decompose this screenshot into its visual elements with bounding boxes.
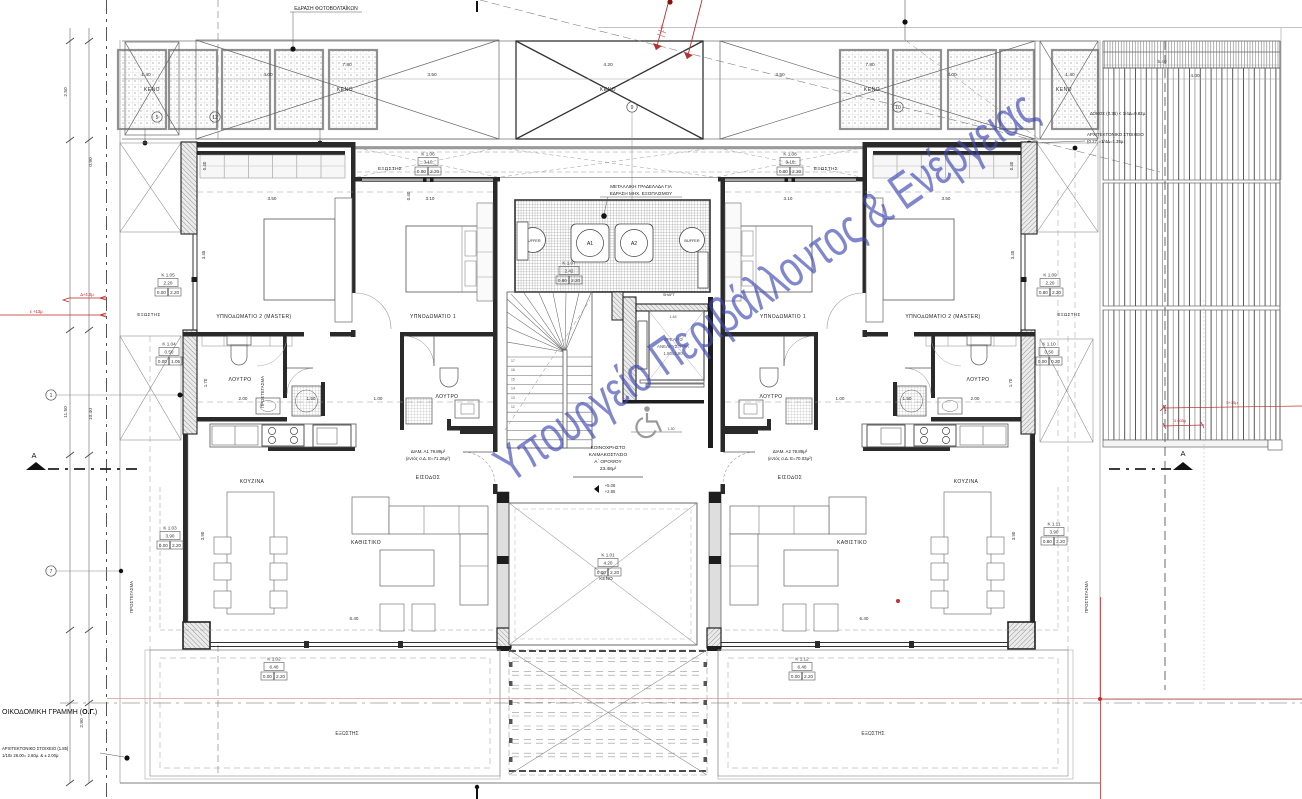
svg-text:0.00: 0.00 [159, 543, 168, 548]
svg-text:A: A [1180, 449, 1185, 458]
svg-text:KENO: KENO [864, 87, 880, 93]
svg-text:Κ 1.08: Κ 1.08 [783, 152, 797, 157]
svg-text:2.20: 2.20 [571, 278, 580, 283]
svg-text:Κ 1.11: Κ 1.11 [1048, 522, 1061, 527]
svg-text:4.00: 4.00 [947, 72, 957, 78]
svg-text:0.00: 0.00 [158, 359, 167, 364]
svg-text:1.70: 1.70 [1008, 378, 1013, 387]
svg-text:ΚΟΥΖΙΝΑ: ΚΟΥΖΙΝΑ [954, 479, 979, 485]
svg-text:ΕΙΣΟ∆ΟΣ: ΕΙΣΟ∆ΟΣ [778, 475, 803, 481]
svg-text:0.00: 0.00 [263, 674, 272, 679]
svg-text:0.00: 0.00 [791, 674, 800, 679]
svg-text:SHAFT: SHAFT [663, 293, 676, 297]
svg-text:3.10: 3.10 [426, 196, 435, 201]
svg-text:1.40: 1.40 [1065, 72, 1075, 78]
svg-text:Κ 1.05: Κ 1.05 [161, 273, 175, 278]
svg-text:3.90: 3.90 [1011, 531, 1016, 540]
svg-text:ΕΙΣΟ∆ΟΣ: ΕΙΣΟ∆ΟΣ [416, 475, 441, 481]
svg-text:KENO: KENO [600, 87, 616, 93]
svg-text:(εντός σ.∆. Ε=71.26μ²): (εντός σ.∆. Ε=71.26μ²) [406, 456, 451, 461]
svg-text:3.50: 3.50 [268, 196, 277, 201]
svg-text:23.48μ²: 23.48μ² [600, 466, 617, 472]
svg-text:0.00: 0.00 [779, 169, 788, 174]
svg-text:9: 9 [631, 105, 634, 111]
svg-text:6.40: 6.40 [860, 616, 869, 621]
svg-text:+5.08: +5.08 [605, 483, 616, 488]
svg-text:12: 12 [511, 405, 515, 409]
svg-text:ΑΡΧΙΤΕΚΤΟΝΙΚΟ ΣΤΟΙΧΕΙΟ (1.85): ΑΡΧΙΤΕΚΤΟΝΙΚΟ ΣΤΟΙΧΕΙΟ (1.85) [2, 746, 69, 751]
svg-text:3.10: 3.10 [424, 160, 433, 165]
svg-text:ΚΛΙΜΑΚΟΣΤΑΣΙΟ: ΚΛΙΜΑΚΟΣΤΑΣΙΟ [589, 452, 628, 458]
svg-text:2.20: 2.20 [430, 169, 439, 174]
svg-text:Κ 1.03: Κ 1.03 [163, 526, 177, 531]
svg-text:2.42: 2.42 [565, 269, 574, 274]
svg-text:ΕΞΩΣΤΗΣ: ΕΞΩΣΤΗΣ [1057, 312, 1080, 317]
svg-text:ε +13μ: ε +13μ [30, 309, 43, 314]
svg-text:1/10x 26.00= 2.60μ. & ± 2.00μ: 1/10x 26.00= 2.60μ. & ± 2.00μ [2, 753, 59, 758]
svg-text:Κ 1.09: Κ 1.09 [1043, 273, 1057, 278]
svg-text:Ε∆ΡΑΣΗ ΦΩΤΟΒΟΛΤΑΪΚΩΝ: Ε∆ΡΑΣΗ ΦΩΤΟΒΟΛΤΑΪΚΩΝ [294, 5, 358, 12]
svg-text:ΚΑΘΙΣΤΙΚΟ: ΚΑΘΙΣΤΙΚΟ [351, 540, 381, 546]
svg-text:10.40: 10.40 [88, 408, 94, 420]
svg-text:1.30: 1.30 [668, 427, 675, 431]
svg-text:0.80: 0.80 [558, 278, 567, 283]
svg-text:5: 5 [156, 115, 159, 121]
svg-text:6.40: 6.40 [350, 616, 359, 621]
svg-text:14: 14 [511, 387, 515, 391]
svg-text:2.20: 2.20 [276, 674, 285, 679]
svg-text:ΛΟΥΤΡΟ: ΛΟΥΤΡΟ [967, 377, 990, 383]
svg-text:(εντός σ.∆. Ε=70.03μ²): (εντός σ.∆. Ε=70.03μ²) [768, 456, 813, 461]
svg-text:0.50: 0.50 [165, 350, 174, 355]
svg-text:Κ 1.06: Κ 1.06 [421, 152, 435, 157]
svg-text:3.50: 3.50 [427, 72, 437, 78]
svg-text:2.20: 2.20 [172, 543, 181, 548]
svg-text:4.20: 4.20 [603, 62, 613, 68]
svg-text:ΚΕΝΟ: ΚΕΝΟ [599, 576, 613, 582]
svg-text:KENO: KENO [337, 87, 353, 93]
svg-text:2.20: 2.20 [792, 169, 801, 174]
svg-text:ΠΡΟΣΤΕΓΑΣΜΑ: ΠΡΟΣΤΕΓΑΣΜΑ [260, 376, 265, 408]
svg-text:2.20: 2.20 [1052, 290, 1061, 295]
svg-text:4.20: 4.20 [604, 561, 613, 566]
svg-text:Κ 1.12: Κ 1.12 [795, 657, 809, 662]
svg-text:1.00: 1.00 [836, 396, 845, 401]
svg-text:BUFFER: BUFFER [684, 239, 699, 243]
svg-text:3.50: 3.50 [775, 72, 785, 78]
svg-text:ΟΙΚΟ∆ΟΜΙΚΗ ΓΡΑΜΜΗ (Ο.Γ.): ΟΙΚΟ∆ΟΜΙΚΗ ΓΡΑΜΜΗ (Ο.Γ.) [2, 709, 97, 716]
svg-text:0.80: 0.80 [1039, 290, 1048, 295]
svg-text:ΛΟΥΤΡΟ: ΛΟΥΤΡΟ [229, 377, 252, 383]
svg-text:3.90: 3.90 [200, 531, 205, 540]
svg-text:A1: A1 [587, 241, 593, 247]
svg-text:2.20: 2.20 [164, 281, 173, 286]
svg-text:2.20: 2.20 [170, 290, 179, 295]
svg-text:2.20: 2.20 [1046, 281, 1055, 286]
svg-text:7.80: 7.80 [342, 62, 352, 68]
svg-text:∆+4.0μ: ∆+4.0μ [80, 292, 94, 297]
svg-text:1.70: 1.70 [203, 378, 208, 387]
svg-text:3.90: 3.90 [166, 534, 175, 539]
svg-text:ΚΟΙΝΟΧΡΗΣΤΟ: ΚΟΙΝΟΧΡΗΣΤΟ [591, 445, 626, 451]
svg-text:6.40: 6.40 [270, 665, 279, 670]
svg-text:KENO: KENO [1056, 87, 1072, 93]
svg-text:ΚΑΘΙΣΤΙΚΟ: ΚΑΘΙΣΤΙΚΟ [837, 540, 867, 546]
svg-text:A2: A2 [631, 241, 637, 247]
svg-text:ΕΞΩΣΤΗΣ: ΕΞΩΣΤΗΣ [137, 312, 160, 317]
svg-text:0.80: 0.80 [1043, 539, 1052, 544]
svg-text:15: 15 [511, 377, 515, 381]
svg-text:2.00: 2.00 [239, 396, 248, 401]
svg-text:2.50: 2.50 [63, 87, 69, 97]
svg-text:∆ΙΑΜ. Α2 79.89μ²: ∆ΙΑΜ. Α2 79.89μ² [773, 449, 808, 454]
svg-text:1.05: 1.05 [171, 359, 180, 364]
svg-text:Κ 1.02: Κ 1.02 [267, 657, 281, 662]
svg-text:3.45: 3.45 [201, 250, 206, 259]
svg-text:2.20: 2.20 [1056, 539, 1065, 544]
svg-text:3.40∆μ: 3.40∆μ [1174, 418, 1187, 423]
svg-text:2.00: 2.00 [971, 396, 980, 401]
svg-text:ΥΠΝΟ∆ΩΜΑΤΙΟ 2 (MASTER): ΥΠΝΟ∆ΩΜΑΤΙΟ 2 (MASTER) [216, 314, 291, 320]
svg-text:7.80: 7.80 [865, 62, 875, 68]
svg-text:ΑΡΧΙΤΕΚΤΟΝΙΚΟ ΣΤΟΙΧΕΙΟ: ΑΡΧΙΤΕΚΤΟΝΙΚΟ ΣΤΟΙΧΕΙΟ [1087, 132, 1144, 137]
svg-text:3.90: 3.90 [1050, 530, 1059, 535]
svg-text:3.10: 3.10 [786, 160, 795, 165]
svg-text:1.00: 1.00 [374, 396, 383, 401]
svg-text:Ε∆ΡΑΣΗ ΜΗΧ. ΕΞΟΠΛΙΣΜΟΥ: Ε∆ΡΑΣΗ ΜΗΧ. ΕΞΟΠΛΙΣΜΟΥ [610, 191, 672, 196]
svg-text:0.40: 0.40 [406, 191, 411, 200]
svg-text:A: A [31, 451, 36, 460]
svg-text:12: 12 [212, 115, 218, 121]
svg-text:ΚΟΥΖΙΝΑ: ΚΟΥΖΙΝΑ [240, 479, 265, 485]
svg-text:2.90: 2.90 [79, 718, 85, 728]
svg-text:7: 7 [50, 569, 53, 575]
svg-text:ΜΕΤΑΛΛΙΚΗ ΓΡΑ∆ΕΛΑ∆Α ΓΙΑ: ΜΕΤΑΛΛΙΚΗ ΓΡΑ∆ΕΛΑ∆Α ΓΙΑ [610, 184, 673, 189]
svg-text:1.50: 1.50 [903, 396, 912, 401]
svg-text:2.20: 2.20 [610, 570, 619, 575]
svg-text:Κ 1.04: Κ 1.04 [162, 342, 176, 347]
svg-text:1.40: 1.40 [141, 72, 151, 78]
svg-text:ΥΠΝΟ∆ΩΜΑΤΙΟ 2 (MASTER): ΥΠΝΟ∆ΩΜΑΤΙΟ 2 (MASTER) [905, 314, 980, 320]
svg-text:ΛΟΥΤΡΟ: ΛΟΥΤΡΟ [436, 394, 459, 400]
svg-text:13: 13 [511, 396, 515, 400]
svg-text:16: 16 [511, 368, 515, 372]
svg-text:0.00: 0.00 [1038, 359, 1047, 364]
svg-text:0.50: 0.50 [1045, 350, 1054, 355]
svg-text:0.00: 0.00 [597, 570, 606, 575]
svg-text:ΕΞΩΣΤΗΣ: ΕΞΩΣΤΗΣ [861, 731, 884, 737]
svg-text:KENO: KENO [144, 87, 160, 93]
svg-text:ΕΞΩΣΤΗΣ: ΕΞΩΣΤΗΣ [378, 166, 402, 171]
svg-text:+2.85: +2.85 [605, 489, 616, 494]
svg-text:∆ΟΚΟΣ (0.35) < 1/4∆=0.82μ.: ∆ΟΚΟΣ (0.35) < 1/4∆=0.82μ. [1090, 111, 1146, 116]
svg-text:ΠΡΟΣΤΕΓΑΣΜΑ: ΠΡΟΣΤΕΓΑΣΜΑ [1084, 581, 1089, 613]
svg-text:Κ 1.01: Κ 1.01 [601, 553, 615, 558]
svg-text:3.45: 3.45 [1010, 250, 1015, 259]
svg-text:17: 17 [511, 359, 515, 363]
svg-text:2.20: 2.20 [804, 674, 813, 679]
svg-text:0.40: 0.40 [202, 161, 207, 170]
svg-text:3.10: 3.10 [784, 196, 793, 201]
svg-text:4.00: 4.00 [263, 72, 273, 78]
svg-text:Κ 1.07: Κ 1.07 [562, 261, 576, 266]
svg-text:∆ΙΑΜ. Α1 79.89μ²: ∆ΙΑΜ. Α1 79.89μ² [411, 449, 446, 454]
svg-text:6.40: 6.40 [798, 665, 807, 670]
svg-text:1: 1 [50, 393, 53, 399]
svg-text:Α΄ ΟΡΟΦΟΥ: Α΄ ΟΡΟΦΟΥ [594, 459, 622, 465]
svg-text:ΛΟΥΤΡΟ: ΛΟΥΤΡΟ [760, 394, 783, 400]
svg-text:11.50: 11.50 [63, 406, 69, 418]
svg-text:ΕΞΩΣΤΗΣ: ΕΞΩΣΤΗΣ [335, 731, 358, 737]
svg-text:0.20: 0.20 [1051, 359, 1060, 364]
svg-text:0.40: 0.40 [1009, 161, 1014, 170]
svg-text:ΕΞΩΣΤΗΣ: ΕΞΩΣΤΗΣ [814, 166, 838, 171]
svg-text:0.90: 0.90 [88, 157, 94, 167]
svg-text:ΠΡΟΣΤΕΓΑΣΜΑ: ΠΡΟΣΤΕΓΑΣΜΑ [129, 581, 134, 613]
svg-text:0.00: 0.00 [157, 290, 166, 295]
svg-text:ΥΠΝΟ∆ΩΜΑΤΙΟ 1: ΥΠΝΟ∆ΩΜΑΤΙΟ 1 [410, 314, 456, 320]
svg-text:0.00: 0.00 [417, 169, 426, 174]
svg-text:5+15μ: 5+15μ [1226, 400, 1238, 405]
svg-text:Κ 1.10: Κ 1.10 [1042, 342, 1056, 347]
svg-text:1.50: 1.50 [307, 396, 316, 401]
